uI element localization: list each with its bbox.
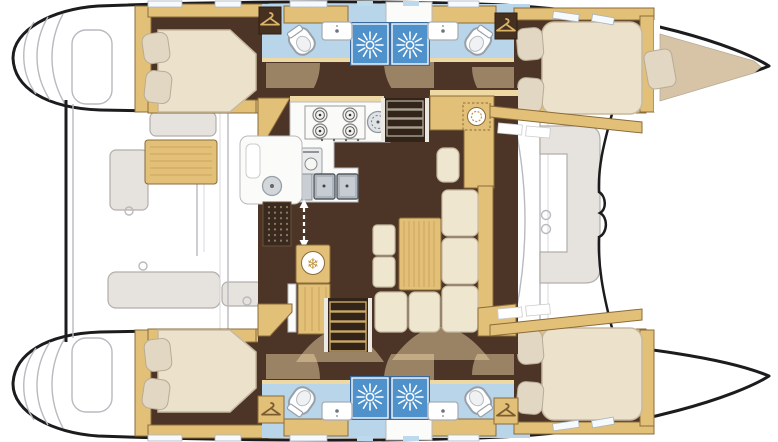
cockpit-bench — [150, 112, 216, 136]
floor-plan-page: ❄ — [0, 0, 778, 442]
stairs-upper-hull — [381, 98, 429, 142]
cockpit-bench — [108, 272, 220, 308]
wardrobe — [494, 398, 518, 424]
forward-crossbeam — [599, 114, 612, 328]
wardrobe — [495, 13, 517, 39]
cockpit-table — [145, 140, 217, 184]
settee-cushion — [375, 292, 407, 332]
door-mat — [263, 202, 291, 246]
pillow — [643, 48, 677, 90]
forward-cockpit-bench — [540, 126, 600, 283]
wardrobe — [259, 7, 281, 34]
stool — [373, 225, 395, 255]
oven — [300, 148, 322, 174]
saloon-table — [399, 218, 441, 290]
cockpit-bench — [110, 150, 148, 210]
stairs-lower-hull — [324, 298, 372, 352]
settee-cushion — [442, 190, 478, 236]
double-sink — [300, 174, 358, 200]
settee-cushion — [442, 238, 478, 284]
catamaran-floor-plan: ❄ — [0, 0, 778, 442]
settee-cushion — [409, 292, 440, 332]
forepeak-berth — [643, 20, 761, 112]
wardrobe — [258, 396, 284, 423]
stool — [373, 257, 395, 287]
forward-cockpit — [505, 112, 612, 330]
aft-cockpit — [66, 100, 262, 342]
snowflake-icon: ❄ — [307, 255, 320, 273]
nav-seat — [437, 148, 459, 182]
settee-cushion — [442, 286, 478, 332]
stove — [305, 106, 365, 141]
